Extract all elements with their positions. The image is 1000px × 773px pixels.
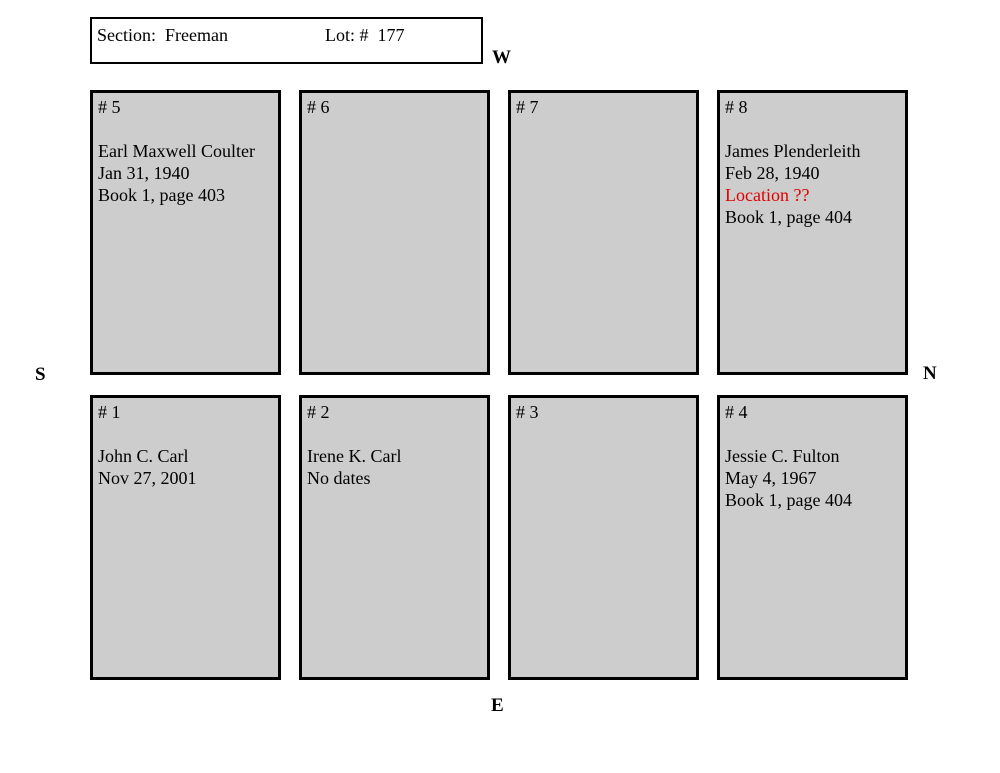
plot-detail-line: No dates [307,467,482,489]
plot-number: # 3 [516,401,691,423]
plot-detail-line: Jan 31, 1940 [98,162,273,184]
plot-detail-line: Nov 27, 2001 [98,467,273,489]
plot-detail-line: Location ?? [725,184,900,206]
compass-west-label: W [492,47,511,69]
lot-label: Lot: # 177 [325,25,405,46]
plot-8: # 8 James PlenderleithFeb 28, 1940Locati… [717,90,908,375]
compass-north-label: N [923,363,937,385]
plot-detail-line: Book 1, page 404 [725,206,900,228]
plot-detail-line: John C. Carl [98,445,273,467]
plot-number: # 2 [307,401,482,423]
plot-number: # 1 [98,401,273,423]
plot-number: # 6 [307,96,482,118]
plot-3: # 3 [508,395,699,680]
plot-5: # 5 Earl Maxwell CoulterJan 31, 1940Book… [90,90,281,375]
plot-number: # 4 [725,401,900,423]
section-lot-header-box: Section: Freeman Lot: # 177 [90,17,483,64]
plot-detail-line: Book 1, page 403 [98,184,273,206]
plot-6: # 6 [299,90,490,375]
plot-number: # 8 [725,96,900,118]
plot-4: # 4 Jessie C. FultonMay 4, 1967Book 1, p… [717,395,908,680]
plot-2: # 2 Irene K. CarlNo dates [299,395,490,680]
plot-details: Irene K. CarlNo dates [307,445,482,489]
plot-detail-line: James Plenderleith [725,140,900,162]
plot-7: # 7 [508,90,699,375]
plot-1: # 1 John C. CarlNov 27, 2001 [90,395,281,680]
plot-number: # 5 [98,96,273,118]
plot-detail-line: Irene K. Carl [307,445,482,467]
plot-detail-line: May 4, 1967 [725,467,900,489]
plot-detail-line: Feb 28, 1940 [725,162,900,184]
cemetery-lot-diagram: Section: Freeman Lot: # 177 W S N E # 5 … [0,0,1000,773]
plot-details: Earl Maxwell CoulterJan 31, 1940Book 1, … [98,140,273,206]
section-label: Section: Freeman [97,25,228,46]
plot-details: John C. CarlNov 27, 2001 [98,445,273,489]
plot-detail-line: Book 1, page 404 [725,489,900,511]
plot-details: Jessie C. FultonMay 4, 1967Book 1, page … [725,445,900,511]
plot-grid: # 5 Earl Maxwell CoulterJan 31, 1940Book… [90,90,908,680]
plot-detail-line: Jessie C. Fulton [725,445,900,467]
plot-detail-line: Earl Maxwell Coulter [98,140,273,162]
compass-east-label: E [491,695,504,717]
plot-number: # 7 [516,96,691,118]
compass-south-label: S [35,364,46,386]
plot-details: James PlenderleithFeb 28, 1940Location ?… [725,140,900,228]
